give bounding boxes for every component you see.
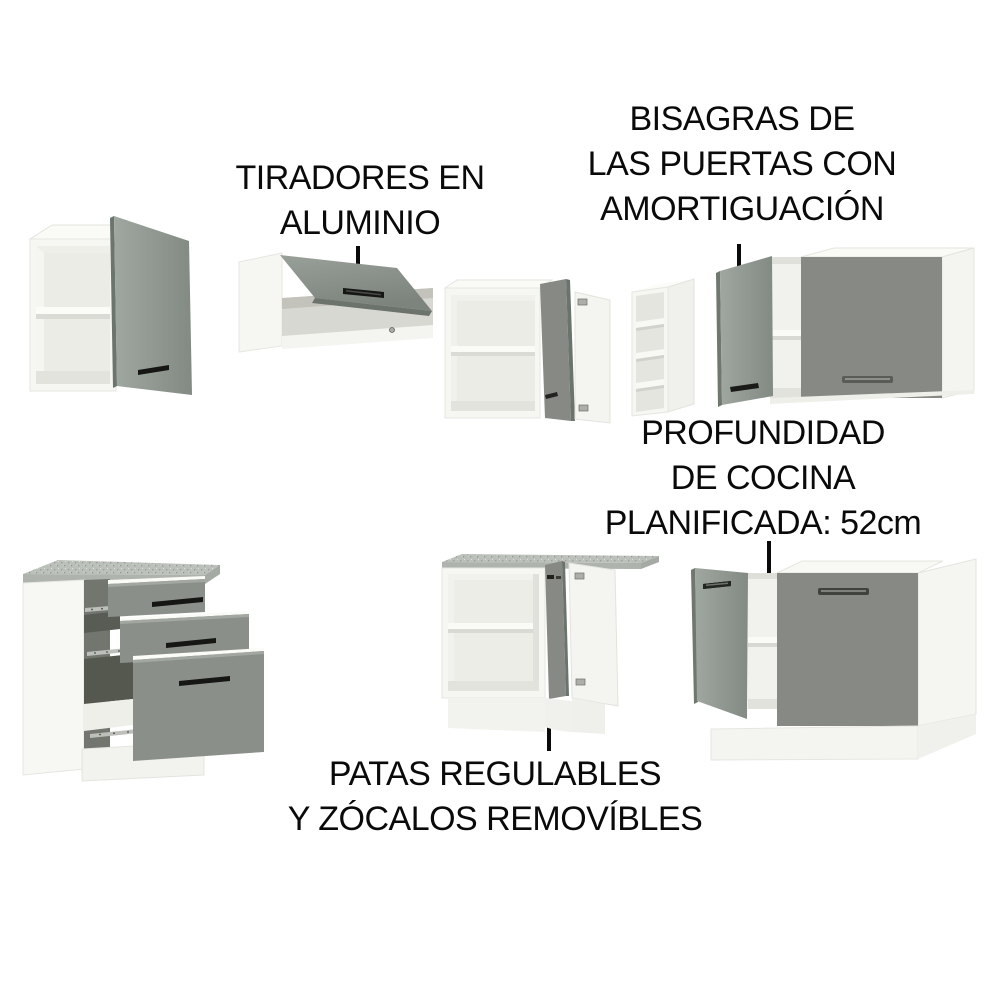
open-door bbox=[720, 256, 773, 405]
slide-bearing bbox=[118, 650, 120, 652]
label-line: BISAGRAS DE bbox=[588, 97, 897, 142]
label-line: Y ZÓCALOS REMOVÍBLES bbox=[288, 797, 703, 842]
hinge-fitting bbox=[390, 328, 395, 333]
shelf-shadow bbox=[770, 336, 801, 340]
interior-bottom-shadow bbox=[448, 681, 539, 691]
label-line: AMORTIGUACIÓN bbox=[588, 187, 897, 232]
shelf bbox=[448, 623, 539, 629]
shelf-shadow bbox=[36, 314, 110, 319]
hinge bbox=[579, 405, 588, 411]
handle-highlight bbox=[821, 590, 866, 592]
slide-bearing bbox=[113, 732, 115, 734]
label-line: LAS PUERTAS CON bbox=[588, 142, 897, 187]
shelf-unit-side bbox=[668, 279, 694, 412]
plinth-side bbox=[572, 698, 605, 734]
shelf bbox=[748, 637, 777, 643]
label-line: PLANIFICADA: 52cm bbox=[605, 501, 921, 546]
label-kitchen-depth: PROFUNDIDAD DE COCINA PLANIFICADA: 52cm bbox=[605, 411, 921, 546]
interior-bottom-shadow bbox=[770, 388, 801, 398]
wall-cabinet-flip-up bbox=[236, 248, 441, 353]
interior-bottom-shadow bbox=[748, 699, 777, 709]
label-line: DE COCINA bbox=[605, 456, 921, 501]
cabinet-side bbox=[942, 248, 974, 398]
countertop bbox=[442, 554, 659, 563]
slide-bearing bbox=[106, 651, 108, 653]
shelf-shadow bbox=[451, 352, 535, 356]
product-diagram: TIRADORES EN ALUMINIO BISAGRAS DE LAS PU… bbox=[0, 0, 1000, 1000]
interior-side-shadow bbox=[533, 574, 539, 691]
label-line: PATAS REGULABLES bbox=[288, 752, 703, 797]
door-handle bbox=[547, 575, 554, 579]
wall-cabinet-corner bbox=[440, 275, 612, 427]
wall-cabinet-two-door bbox=[713, 243, 978, 415]
drawer-front-3 bbox=[133, 651, 264, 761]
shelf bbox=[770, 330, 801, 336]
open-door bbox=[540, 279, 571, 421]
corner-return-panel bbox=[575, 292, 610, 423]
shelf bbox=[451, 346, 535, 352]
base-cabinet-drawers bbox=[18, 553, 268, 785]
shelf-shadow bbox=[748, 643, 777, 647]
hinge bbox=[576, 679, 585, 685]
carcass-side-panel bbox=[23, 580, 84, 775]
drawer-box-side bbox=[84, 699, 133, 731]
open-door bbox=[695, 568, 748, 719]
slide-bearing bbox=[91, 609, 93, 611]
open-shelf-unit bbox=[628, 276, 700, 418]
hinge bbox=[578, 299, 587, 305]
interior-top-shadow bbox=[748, 573, 777, 579]
plinth bbox=[448, 698, 545, 732]
cabinet-interior bbox=[770, 257, 801, 398]
slide-bearing bbox=[99, 734, 101, 736]
countertop bbox=[23, 560, 220, 575]
shelf bbox=[36, 307, 110, 314]
hinge bbox=[575, 573, 584, 579]
label-line: TIRADORES EN bbox=[235, 156, 484, 201]
cabinet-top bbox=[445, 280, 552, 288]
cabinet-side bbox=[918, 559, 976, 726]
label-aluminium-handles: TIRADORES EN ALUMINIO bbox=[235, 156, 484, 246]
plinth-corner bbox=[545, 698, 572, 732]
interior-bottom-shadow bbox=[451, 401, 535, 411]
base-cabinet-two-door bbox=[690, 556, 982, 762]
handle-highlight bbox=[845, 378, 890, 380]
cabinet-side-panel bbox=[239, 253, 282, 352]
label-adjustable-legs: PATAS REGULABLES Y ZÓCALOS REMOVÍBLES bbox=[288, 752, 703, 842]
cabinet-top-edge bbox=[777, 561, 943, 573]
slide-bearing bbox=[94, 652, 96, 654]
plinth bbox=[711, 726, 918, 760]
wall-cabinet-single-door bbox=[22, 213, 197, 398]
shelf-shadow bbox=[448, 629, 539, 633]
base-cabinet-corner bbox=[438, 551, 662, 741]
label-soft-close-hinges: BISAGRAS DE LAS PUERTAS CON AMORTIGUACIÓ… bbox=[588, 97, 897, 232]
interior-bottom-shadow bbox=[36, 371, 110, 384]
label-line: ALUMINIO bbox=[235, 201, 484, 246]
slide-bearing bbox=[101, 608, 103, 610]
door-handle bbox=[556, 576, 561, 579]
closed-door bbox=[777, 573, 918, 726]
interior-top-shadow bbox=[770, 257, 801, 264]
slide-bearing bbox=[127, 731, 129, 733]
